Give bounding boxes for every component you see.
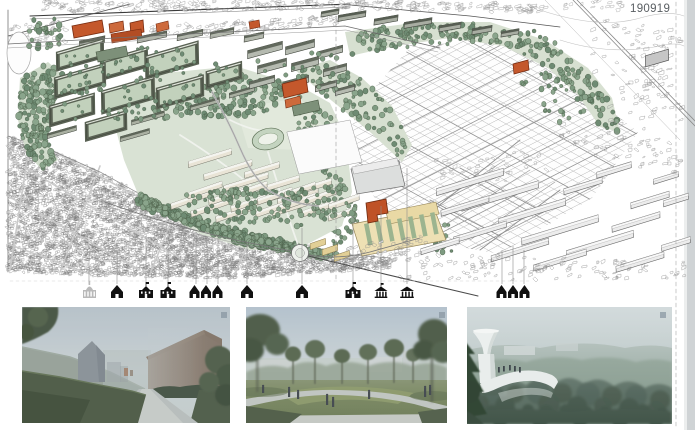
svg-text:190919: 190919 [630, 3, 670, 15]
